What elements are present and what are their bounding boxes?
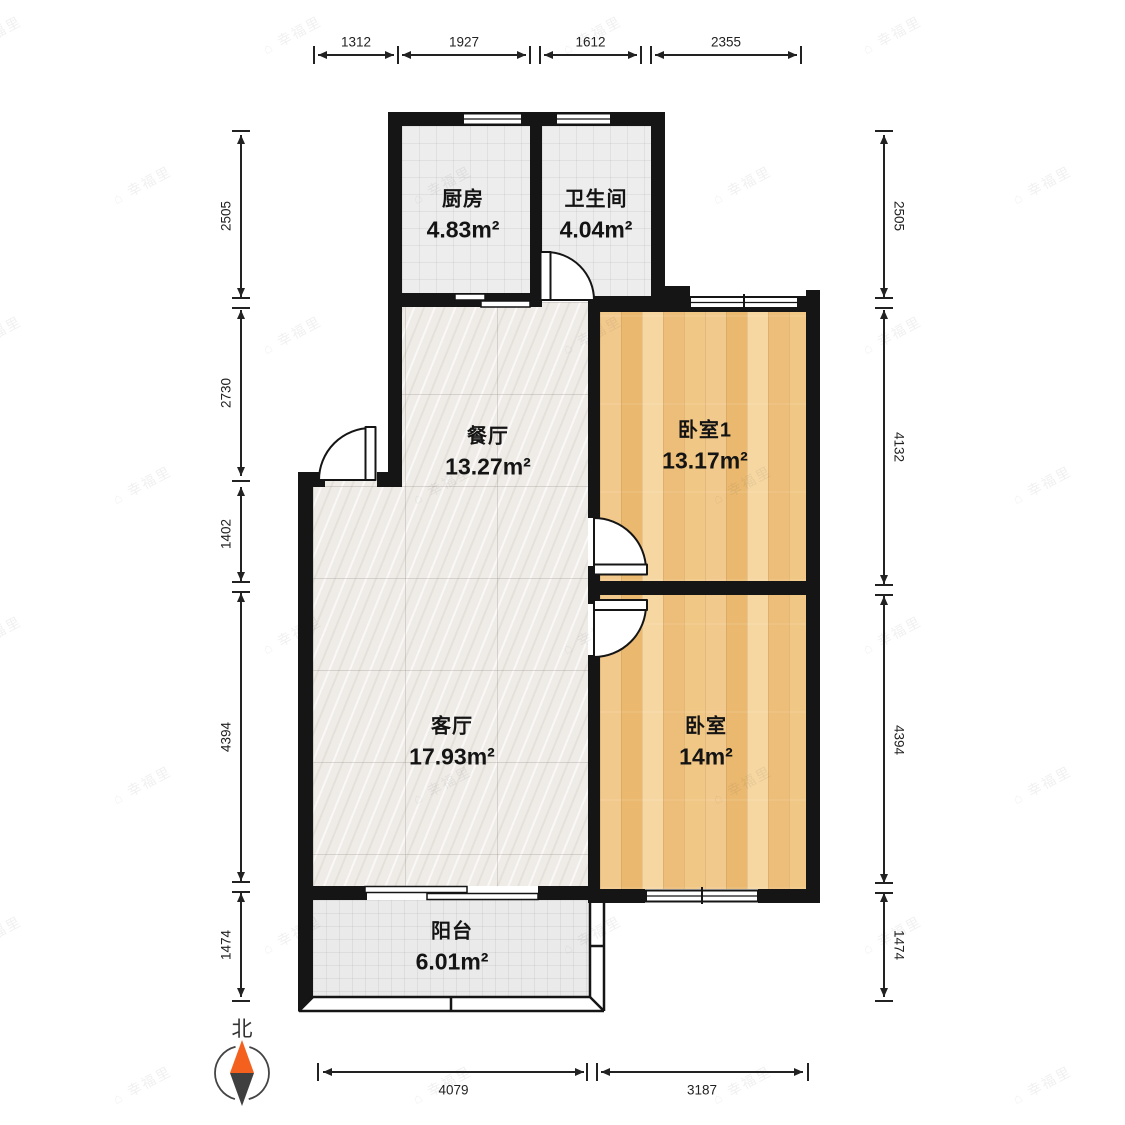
wall-segment — [588, 566, 600, 604]
room-area: 13.17m² — [662, 448, 748, 475]
wall-segment — [530, 112, 542, 307]
wall-segment — [313, 886, 367, 900]
dimension-label: 4394 — [219, 722, 234, 752]
dimension-tick — [875, 307, 893, 309]
dimension-tick — [875, 594, 893, 596]
dimension-arrowhead — [575, 1068, 584, 1076]
room-name: 客厅 — [409, 710, 495, 739]
dimension-tick — [800, 46, 802, 64]
dimension-arrowhead — [788, 51, 797, 59]
watermark: ⌂ 幸福里 — [0, 311, 25, 359]
dimension-line — [240, 893, 242, 997]
dimension-tick — [586, 1063, 588, 1081]
watermark: ⌂ 幸福里 — [1009, 461, 1075, 509]
watermark: ⌂ 幸福里 — [1009, 761, 1075, 809]
dimension-line — [883, 310, 885, 584]
dimension-label: 1312 — [341, 35, 371, 50]
dimension-arrowhead — [237, 487, 245, 496]
dimension-tick — [640, 46, 642, 64]
dimension-arrowhead — [237, 988, 245, 997]
room-name: 厨房 — [427, 183, 500, 212]
dimension-label: 4394 — [892, 724, 907, 754]
dimension-tick — [232, 297, 250, 299]
room-label-balcony: 阳台 6.01m² — [416, 915, 489, 976]
dimension-arrowhead — [794, 1068, 803, 1076]
watermark: ⌂ 幸福里 — [0, 611, 25, 659]
dimension-tick — [232, 581, 250, 583]
dimension-line — [544, 54, 637, 56]
watermark: ⌂ 幸福里 — [859, 311, 925, 359]
dimension-tick — [596, 1063, 598, 1081]
dimension-arrowhead — [237, 135, 245, 144]
dimension-tick — [232, 891, 250, 893]
room-area: 14m² — [679, 744, 733, 771]
room-area: 6.01m² — [416, 949, 489, 976]
dimension-label: 1402 — [219, 519, 234, 549]
dimension-tick — [875, 892, 893, 894]
dimension-arrowhead — [237, 872, 245, 881]
dimension-arrowhead — [880, 288, 888, 297]
watermark: ⌂ 幸福里 — [1009, 161, 1075, 209]
dimension-tick — [232, 480, 250, 482]
dimension-arrowhead — [237, 467, 245, 476]
dimension-arrowhead — [880, 575, 888, 584]
room-label-bathroom: 卫生间 4.04m² — [560, 183, 633, 244]
watermark: ⌂ 幸福里 — [709, 1061, 775, 1109]
dimension-tick — [875, 584, 893, 586]
watermark: ⌂ 幸福里 — [0, 911, 25, 959]
room-name: 餐厅 — [445, 420, 531, 449]
floor-plan-canvas: 北 厨房 4.83m² 卫生间 4.04m² 餐厅 13.27m² 卧室1 13… — [0, 0, 1125, 1125]
compass-needle-north — [230, 1040, 254, 1073]
dimension-arrowhead — [628, 51, 637, 59]
wall-segment — [651, 112, 665, 312]
dimension-label: 1474 — [892, 930, 907, 960]
dimension-tick — [807, 1063, 809, 1081]
dimension-arrowhead — [655, 51, 664, 59]
dimension-tick — [232, 591, 250, 593]
dimension-label: 2505 — [219, 201, 234, 231]
dimension-tick — [875, 1000, 893, 1002]
room-label-bedroom1: 卧室1 13.17m² — [662, 414, 748, 475]
dimension-arrowhead — [601, 1068, 610, 1076]
dimension-line — [655, 54, 797, 56]
dimension-tick — [232, 307, 250, 309]
dimension-line — [240, 593, 242, 881]
dimension-arrowhead — [880, 893, 888, 902]
dimension-label: 4079 — [438, 1083, 468, 1098]
wall-segment — [806, 290, 820, 903]
wall-segment — [588, 655, 600, 889]
dimension-label: 1612 — [575, 35, 605, 50]
room-area: 13.27m² — [445, 454, 531, 481]
dimension-tick — [397, 46, 399, 64]
dimension-tick — [875, 130, 893, 132]
room-label-bedroom: 卧室 14m² — [679, 710, 733, 771]
watermark: ⌂ 幸福里 — [1009, 1061, 1075, 1109]
dimension-label: 1927 — [449, 35, 479, 50]
wall-segment — [388, 112, 665, 126]
dimension-arrowhead — [318, 51, 327, 59]
dimension-tick — [875, 297, 893, 299]
room-area: 4.83m² — [427, 217, 500, 244]
watermark: ⌂ 幸福里 — [109, 761, 175, 809]
dimension-label: 1474 — [219, 930, 234, 960]
dimension-arrowhead — [385, 51, 394, 59]
bedroom-window — [646, 887, 758, 904]
dimension-arrowhead — [880, 135, 888, 144]
dimension-line — [883, 135, 885, 297]
watermark: ⌂ 幸福里 — [259, 311, 325, 359]
dimension-label: 2355 — [711, 35, 741, 50]
dimension-tick — [232, 1000, 250, 1002]
dimension-line — [883, 596, 885, 883]
room-name: 阳台 — [416, 915, 489, 944]
watermark: ⌂ 幸福里 — [709, 161, 775, 209]
watermark: ⌂ 幸福里 — [859, 11, 925, 59]
compass-needle-south — [230, 1073, 254, 1106]
dimension-line — [318, 54, 394, 56]
wall-segment — [588, 889, 645, 903]
balcony-sliding-door — [365, 887, 538, 900]
dimension-tick — [875, 882, 893, 884]
room-name: 卧室 — [679, 710, 733, 739]
compass-north-label: 北 — [232, 1018, 253, 1041]
bedroom1-window — [690, 294, 798, 311]
wall-segment — [588, 296, 820, 312]
compass: 北 — [215, 1018, 269, 1106]
dimension-tick — [313, 46, 315, 64]
dimension-line — [402, 54, 526, 56]
wall-segment — [298, 472, 313, 903]
room-name: 卫生间 — [560, 183, 633, 212]
watermark: ⌂ 幸福里 — [109, 1061, 175, 1109]
room-area: 4.04m² — [560, 217, 633, 244]
room-label-dining: 餐厅 13.27m² — [445, 420, 531, 481]
dimension-arrowhead — [880, 310, 888, 319]
watermark: ⌂ 幸福里 — [259, 11, 325, 59]
room-label-living: 客厅 17.93m² — [409, 710, 495, 771]
room-area: 17.93m² — [409, 744, 495, 771]
room-name: 卧室1 — [662, 414, 748, 443]
dimension-tick — [232, 130, 250, 132]
dimension-tick — [317, 1063, 319, 1081]
wall-segment — [665, 286, 690, 312]
dimension-label: 2730 — [219, 378, 234, 408]
dimension-arrowhead — [237, 893, 245, 902]
dimension-arrowhead — [880, 596, 888, 605]
watermark: ⌂ 幸福里 — [109, 161, 175, 209]
dimension-tick — [232, 881, 250, 883]
room-label-kitchen: 厨房 4.83m² — [427, 183, 500, 244]
dimension-arrowhead — [237, 572, 245, 581]
dimension-label: 4132 — [892, 432, 907, 462]
dimension-arrowhead — [517, 51, 526, 59]
dimension-tick — [650, 46, 652, 64]
dimension-arrowhead — [237, 288, 245, 297]
watermark: ⌂ 幸福里 — [859, 611, 925, 659]
dimension-tick — [529, 46, 531, 64]
kitchen-window — [463, 114, 522, 125]
dimension-line — [240, 487, 242, 581]
wall-segment — [758, 889, 806, 903]
watermark: ⌂ 幸福里 — [0, 11, 25, 59]
dimension-line — [240, 135, 242, 297]
dimension-arrowhead — [323, 1068, 332, 1076]
dimension-line — [323, 1071, 584, 1073]
dimension-arrowhead — [237, 593, 245, 602]
wall-segment — [388, 112, 402, 487]
dimension-arrowhead — [544, 51, 553, 59]
dimension-tick — [539, 46, 541, 64]
watermark: ⌂ 幸福里 — [109, 461, 175, 509]
dining-living-floor — [313, 302, 588, 886]
dimension-line — [240, 310, 242, 476]
dimension-line — [601, 1071, 803, 1073]
dimension-arrowhead — [880, 988, 888, 997]
dimension-label: 3187 — [687, 1083, 717, 1098]
dimension-arrowhead — [402, 51, 411, 59]
bathroom-window — [556, 114, 611, 125]
dimension-label: 2505 — [892, 201, 907, 231]
dimension-line — [883, 893, 885, 997]
wall-segment — [588, 581, 806, 595]
dimension-arrowhead — [237, 310, 245, 319]
compass-circle — [215, 1046, 269, 1100]
wall-segment — [538, 886, 600, 900]
